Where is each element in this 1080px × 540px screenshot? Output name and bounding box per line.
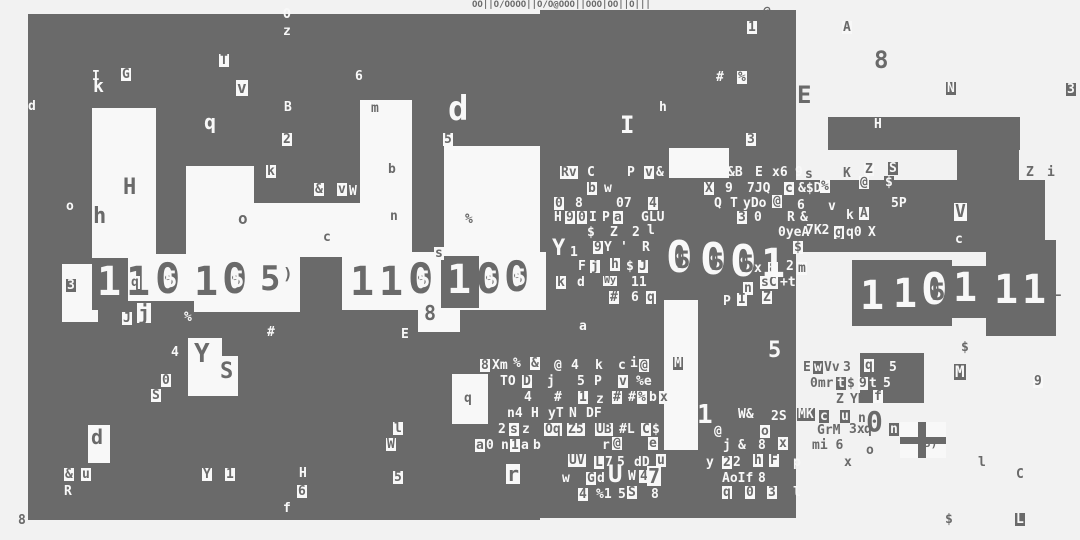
glyph: n [501, 439, 509, 452]
glyph: F [769, 454, 779, 467]
white-col [360, 100, 412, 252]
glyph: M [673, 357, 683, 370]
white-col-bottom-mid [664, 300, 698, 450]
glyph: Q [714, 197, 722, 210]
glyph: 5 [164, 270, 177, 292]
glyph: s [434, 247, 444, 260]
glyph: # [716, 71, 724, 84]
glyph: 3 [767, 486, 777, 499]
glyph: 1 [893, 274, 917, 314]
glyph: % [737, 71, 747, 84]
glyph: k [556, 276, 566, 289]
glyph: v [644, 166, 654, 179]
glyph: 5 [740, 252, 754, 276]
glyph: d [448, 92, 468, 126]
glyph: 8 [480, 359, 490, 372]
glyph: 1 [747, 21, 757, 34]
glyph: 1 [578, 391, 588, 404]
glyph: I [737, 293, 747, 306]
glyph: 5 [577, 375, 585, 388]
glyph: s [805, 168, 813, 181]
glyph: %e [636, 375, 652, 388]
glyph: DF [586, 407, 602, 420]
glyph: G [121, 68, 131, 81]
glyph: # [628, 391, 636, 404]
glyph: 5 [676, 248, 690, 272]
glyph: c [819, 410, 829, 423]
glyph: UY [706, 166, 722, 179]
glyph: 2 [733, 456, 741, 469]
glyph: 8 [758, 472, 766, 485]
glyph: P [723, 295, 731, 308]
glyph: q [130, 276, 140, 289]
glyph: o [66, 200, 74, 213]
glyph: M [954, 364, 966, 380]
glyph: Z [762, 291, 772, 304]
glyph: 0 [577, 211, 587, 224]
glyph: n [389, 210, 399, 223]
glyph: q [864, 359, 874, 372]
glyph: U [608, 462, 622, 486]
glyph: P [602, 211, 610, 224]
glyph: x6 [772, 166, 788, 179]
glyph: 07 [616, 197, 632, 210]
glyph: T [219, 54, 229, 67]
window-grid-label: 3) [924, 438, 937, 449]
glyph: Rv [560, 166, 578, 179]
glyph: I [589, 211, 597, 224]
glyph: 2S [771, 410, 787, 423]
glyph: C [641, 423, 651, 436]
glyph: 0 [554, 197, 564, 210]
glyph: 1 [1022, 270, 1046, 310]
glyph: W& [738, 408, 754, 421]
glyph: 7 [682, 439, 690, 452]
glyph: j [723, 439, 731, 452]
glyph: 5 [889, 361, 897, 374]
glyph: &$D [798, 182, 821, 195]
glyph: 5 [260, 262, 280, 296]
glyph: $ [626, 260, 634, 273]
glyph: $ [652, 423, 660, 436]
glyph: # [609, 291, 619, 304]
glyph: Z [1026, 166, 1034, 179]
glyph: & [64, 468, 74, 481]
glyph: % [513, 357, 521, 370]
glyph: y [706, 456, 714, 469]
glyph: & [530, 357, 540, 370]
glyph: — [1053, 289, 1061, 302]
glyph: J [122, 312, 132, 325]
glyph: w [813, 361, 823, 374]
glyph: 5 [443, 133, 453, 146]
glyph: E [797, 83, 811, 107]
glyph: k [595, 359, 603, 372]
glyph: q [204, 112, 216, 132]
glyph: $ [587, 226, 595, 239]
glyph: 0 [161, 374, 171, 387]
glyph: D [522, 375, 532, 388]
glyph: 8 [575, 197, 583, 210]
glyph: c [955, 233, 963, 246]
glyph: 2 [282, 133, 292, 146]
glyph: 2 [786, 260, 794, 273]
glyph: Z [610, 226, 618, 239]
glyph: 1 [379, 262, 403, 302]
glyph: R [64, 485, 72, 498]
glyph: # [612, 391, 622, 404]
glyph: O [283, 8, 291, 21]
glyph: 7K2 [806, 224, 829, 237]
glyph: 8 [874, 48, 888, 72]
glyph: P [627, 166, 635, 179]
glyph: GrM [817, 424, 840, 437]
glyph: TO [500, 375, 516, 388]
glyph: 1 [953, 268, 977, 308]
glyph: & [738, 439, 746, 452]
glyph: 4 [571, 359, 579, 372]
glyph: o [238, 211, 248, 227]
glyph: a [475, 439, 485, 452]
glyph: 3 [843, 361, 851, 374]
glyph: 5 [618, 488, 626, 501]
glyph: 3x [849, 423, 865, 436]
glyph: 5 [231, 270, 244, 292]
glyph: x [844, 456, 852, 469]
glyph: E [401, 328, 409, 341]
glyph: 4 [648, 197, 658, 210]
glyph: @ [772, 195, 782, 208]
glyph: a [613, 211, 623, 224]
glyph: 2 [632, 226, 640, 239]
glyph: q [464, 392, 472, 405]
glyph: P [594, 375, 602, 388]
glyph: w [562, 472, 570, 485]
glyph: h [610, 258, 620, 271]
glyph: Y [552, 238, 565, 260]
glyph: q [646, 291, 656, 304]
glyph: j [547, 375, 555, 388]
glyph: B [284, 101, 292, 114]
glyph: W [628, 470, 636, 483]
glyph: H [531, 407, 539, 420]
glyph: W [349, 185, 357, 198]
glyph: m [371, 102, 379, 115]
glyph: v [236, 80, 248, 96]
glyph: YN [850, 393, 866, 406]
glyph: 6 [355, 70, 363, 83]
glyph: MK [797, 408, 815, 421]
glyph: S [888, 162, 898, 175]
glyph: l [647, 224, 655, 237]
glyph: 4 [524, 391, 532, 404]
glyph: q [864, 423, 872, 436]
glyph: UB [595, 423, 613, 436]
glyph: L [1015, 513, 1025, 526]
glyph: G [586, 472, 596, 485]
glyph: 9 [1033, 375, 1043, 388]
glyph: Vv [824, 361, 840, 374]
glyph: $ [884, 176, 894, 189]
glyph: R [787, 211, 795, 224]
glyph: 5 [883, 377, 891, 390]
glyph: b [387, 163, 397, 176]
glyph: @ [639, 359, 649, 372]
glyph: Oq [544, 423, 562, 436]
glyph: 2 [722, 456, 732, 469]
glyph: 6 [631, 291, 639, 304]
glyph: Z5 [567, 423, 585, 436]
glyph: % [465, 213, 473, 226]
glyph: b [587, 182, 597, 195]
glyph: T [730, 197, 738, 210]
glyph: E [803, 361, 811, 374]
glyph: H [554, 211, 562, 224]
glyph: Z [836, 393, 844, 406]
glyph: w [604, 182, 612, 195]
glyph: R [642, 241, 650, 254]
glyph: 5 [485, 270, 498, 292]
glyph: X [704, 182, 714, 195]
glyph: N [569, 407, 577, 420]
glyph: 4 [578, 488, 588, 501]
glyph: H [299, 467, 307, 480]
glyph: Wy [603, 276, 617, 286]
glyph: A [842, 21, 852, 34]
glyph: j [590, 260, 600, 273]
glyph: c [618, 359, 626, 372]
glyph: p [793, 456, 801, 469]
glyph: & [656, 166, 664, 179]
glyph: r [602, 439, 610, 452]
glyph: v [618, 375, 628, 388]
glyph: 1 [860, 276, 884, 316]
glyph: I [620, 113, 634, 137]
glyph: AoIf [722, 472, 753, 485]
glyph: d [91, 427, 103, 447]
glyph: J [638, 260, 648, 273]
glyph: 6 [297, 485, 307, 498]
glyph: 1 [761, 244, 785, 284]
glyph: V [954, 203, 967, 221]
glyph: @ [714, 425, 722, 438]
glyph: $ [793, 241, 803, 254]
block-topright-small [957, 148, 1019, 182]
glyph: 5 [417, 270, 430, 292]
glyph: 9 [858, 377, 868, 390]
glyph: N [946, 82, 956, 95]
glyph: h [659, 101, 667, 114]
glyph: 1 [350, 262, 374, 302]
glyph: c [322, 231, 332, 244]
glyph: z [283, 25, 291, 38]
glyph: h [93, 206, 106, 228]
glyph: ) [283, 266, 293, 282]
glyph: k [266, 165, 276, 178]
glyph: OO||O/OOOO||O/O@OOO||OOO|OO||O||| [472, 1, 651, 10]
glyph: j [137, 303, 151, 323]
glyph: 1 [994, 270, 1018, 310]
glyph: @ [859, 176, 869, 189]
glyph: x [778, 437, 788, 450]
glyph: S [151, 389, 161, 402]
glyph: h [753, 454, 763, 467]
glyph: S [220, 361, 233, 383]
glyph: Y [604, 241, 612, 254]
glyph: $ [847, 377, 855, 390]
glyph: g [834, 226, 844, 239]
glyph: W [386, 438, 396, 451]
glyph: X [868, 226, 876, 239]
glyph: A [859, 207, 869, 220]
glyph: % [820, 180, 830, 193]
glyph: o [760, 425, 770, 438]
glyph: s [509, 423, 519, 436]
glyph: 2 [498, 423, 506, 436]
glyph: H [123, 177, 136, 199]
glyph: L [594, 456, 604, 469]
glyph: 5 [393, 471, 403, 484]
glyph: @ [554, 359, 562, 372]
glyph: Y [202, 468, 212, 481]
glyph: i [629, 357, 639, 370]
glyph: d [577, 276, 585, 289]
glyph: f [873, 390, 883, 403]
glyph: mi 6 [812, 439, 843, 452]
glyph: @ [763, 6, 771, 19]
glyph: 1 [225, 468, 235, 481]
glyph: f [283, 502, 291, 515]
glyph: 5 [931, 280, 945, 304]
glyph: x [659, 391, 669, 404]
glyph: yDo [743, 197, 766, 210]
glyph: K [843, 167, 851, 180]
glyph: 1 [570, 246, 578, 259]
glyph: 8 [758, 439, 766, 452]
glyph: 8 [651, 488, 659, 501]
glyph: 0 [754, 211, 762, 224]
glyph: 1 [447, 260, 471, 300]
glyph: 11 [631, 276, 647, 289]
glyph: 0 [288, 218, 311, 256]
glyph: b [649, 391, 657, 404]
glyph: n4 [507, 407, 523, 420]
glyph: 9 [725, 182, 733, 195]
glyph: n [889, 423, 899, 436]
glyph: Xm [492, 359, 508, 372]
glyph: 3 [66, 279, 76, 292]
glyph: t [836, 377, 846, 390]
glyph: C [587, 166, 595, 179]
glyph: m [797, 262, 807, 275]
glyph: v [337, 183, 347, 196]
glyph: 0yeA [778, 226, 809, 239]
glyph: % [637, 391, 647, 404]
glyph: $ [945, 513, 953, 526]
glyph: r [506, 464, 520, 484]
glyph: 0mr [810, 377, 833, 390]
window-bar-horizontal [900, 437, 946, 444]
white-col [444, 146, 540, 262]
glyph: v [828, 200, 836, 213]
glyph: @ [612, 437, 622, 450]
glyph: 5P [891, 197, 907, 210]
glyph: 3 [746, 133, 756, 146]
glyph: b [533, 439, 541, 452]
glyph: 4 [171, 346, 179, 359]
noise-canvas: 3) OO||O/OOOO||O/O@OOO||OOO|OO||O|||Oz@1… [0, 0, 1080, 540]
glyph: 3 [737, 211, 747, 224]
glyph: u [81, 468, 91, 481]
glyph: # [267, 326, 275, 339]
glyph: l [793, 486, 801, 499]
glyph: H [874, 118, 882, 131]
glyph: z [596, 393, 604, 406]
block-topright-bar [828, 117, 1020, 150]
glyph: 9 [593, 241, 603, 254]
glyph: 1 [97, 262, 121, 302]
glyph: a [521, 439, 529, 452]
glyph: 5 [513, 268, 526, 290]
glyph: l [978, 456, 986, 469]
glyph: 9 [565, 211, 575, 224]
glyph: % [184, 311, 192, 324]
glyph: c [784, 182, 794, 195]
glyph: 1 [194, 262, 218, 302]
glyph: o [866, 444, 874, 457]
glyph: q0 [846, 226, 862, 239]
glyph: & [314, 183, 324, 196]
glyph: k [846, 209, 854, 222]
glyph: F [578, 260, 586, 273]
glyph: 1 [510, 439, 520, 452]
glyph: 7 [647, 466, 661, 486]
glyph: 7JQ [747, 182, 770, 195]
glyph: 3 [1066, 83, 1076, 96]
glyph: 0 [486, 439, 494, 452]
glyph: #L [619, 423, 635, 436]
glyph: d [597, 472, 605, 485]
glyph: C [1016, 468, 1024, 481]
glyph: yT [548, 407, 564, 420]
glyph: $ [961, 341, 969, 354]
glyph: %1 [596, 488, 612, 501]
glyph: k [93, 78, 104, 96]
glyph: e [648, 437, 658, 450]
glyph: S [627, 486, 637, 499]
glyph: q [722, 486, 732, 499]
glyph: E [755, 166, 763, 179]
glyph: d [28, 100, 36, 113]
glyph: 8 [18, 514, 26, 527]
glyph: 9 [795, 166, 803, 179]
glyph: # [554, 391, 562, 404]
glyph: 8 [424, 303, 436, 323]
glyph: 0 [745, 486, 755, 499]
glyph: z [522, 423, 530, 436]
glyph: l [393, 422, 403, 435]
glyph: ' [620, 241, 628, 254]
glyph: 1 [697, 402, 713, 428]
glyph: 5 [768, 340, 781, 362]
glyph: UV [568, 454, 586, 467]
glyph: Y [194, 341, 210, 367]
glyph: i [1047, 166, 1055, 179]
glyph: a [579, 320, 587, 333]
glyph: &B [727, 166, 743, 179]
glyph: 5 [710, 250, 724, 274]
